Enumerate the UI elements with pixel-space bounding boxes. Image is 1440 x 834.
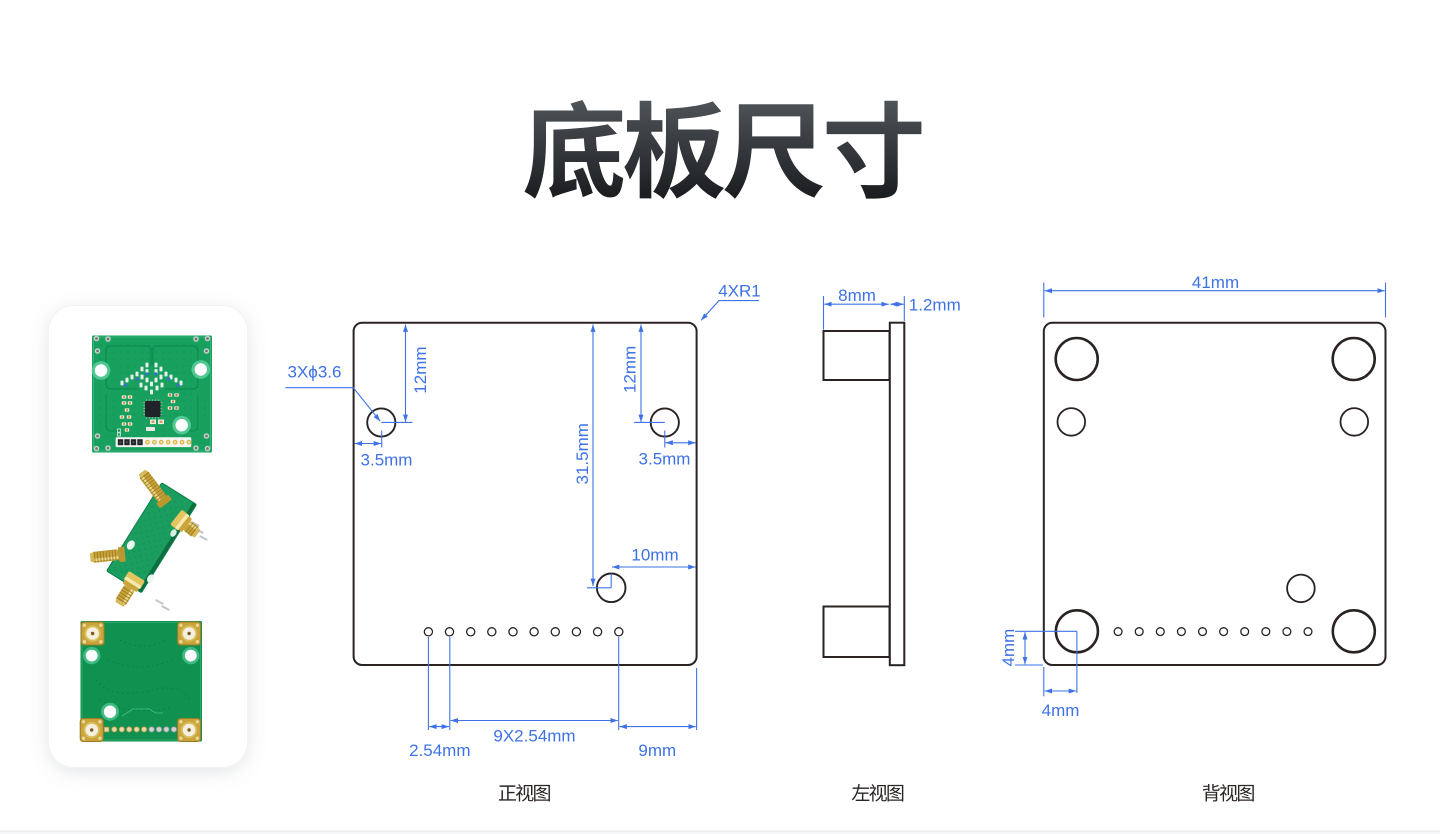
svg-text:31.5mm: 31.5mm xyxy=(573,423,592,484)
svg-text:4mm: 4mm xyxy=(1042,701,1080,720)
svg-text:12mm: 12mm xyxy=(411,346,430,393)
svg-text:9mm: 9mm xyxy=(638,741,676,760)
svg-text:12mm: 12mm xyxy=(621,346,640,393)
svg-text:3Xϕ3.6: 3Xϕ3.6 xyxy=(288,362,342,381)
svg-text:1.2mm: 1.2mm xyxy=(909,296,961,315)
svg-text:8mm: 8mm xyxy=(838,286,876,305)
svg-text:3.5mm: 3.5mm xyxy=(639,450,691,469)
svg-text:9X2.54mm: 9X2.54mm xyxy=(493,727,575,746)
svg-text:10mm: 10mm xyxy=(631,546,678,565)
svg-text:4XR1: 4XR1 xyxy=(718,282,761,301)
svg-text:2.54mm: 2.54mm xyxy=(409,741,470,760)
svg-text:3.5mm: 3.5mm xyxy=(361,451,413,470)
svg-text:41mm: 41mm xyxy=(1192,273,1239,292)
svg-text:4mm: 4mm xyxy=(999,629,1018,667)
